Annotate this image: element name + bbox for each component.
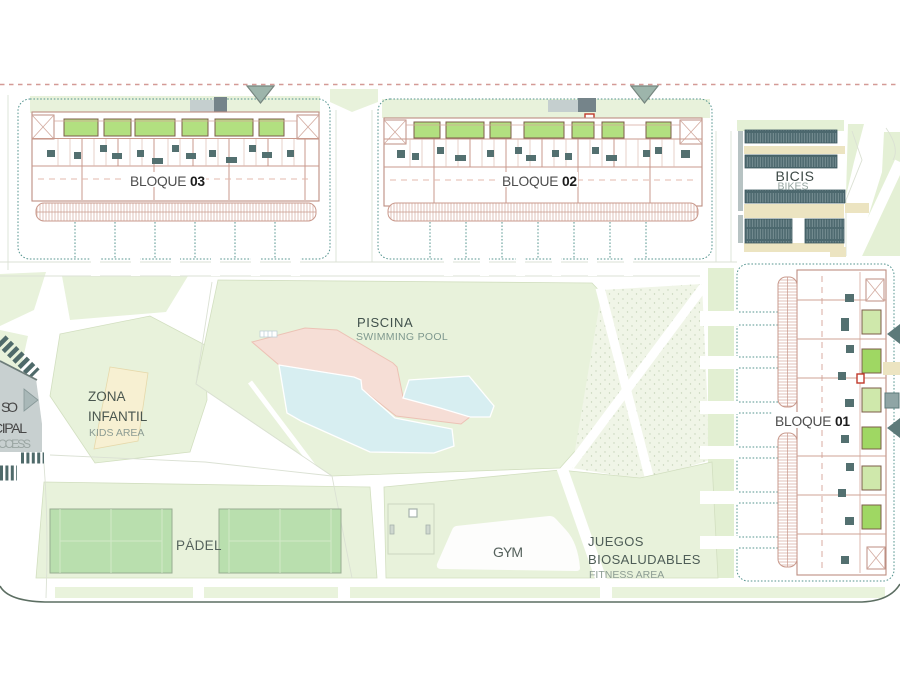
- svg-text:BLOQUE 03: BLOQUE 03: [130, 174, 205, 189]
- svg-text:BIOSALUDABLES: BIOSALUDABLES: [588, 552, 701, 567]
- svg-text:BLOQUE 01: BLOQUE 01: [775, 414, 850, 429]
- svg-text:KIDS AREA: KIDS AREA: [89, 427, 144, 439]
- svg-text:FITNESS AREA: FITNESS AREA: [589, 569, 664, 581]
- svg-text:INFANTIL: INFANTIL: [88, 409, 148, 424]
- svg-text:CIPAL: CIPAL: [0, 420, 27, 436]
- svg-text:SWIMMING POOL: SWIMMING POOL: [356, 331, 448, 343]
- svg-text:SO: SO: [1, 399, 18, 415]
- svg-text:GYM: GYM: [493, 544, 523, 560]
- svg-text:CCESS: CCESS: [0, 437, 31, 451]
- svg-text:JUEGOS: JUEGOS: [588, 534, 644, 549]
- svg-text:BLOQUE 02: BLOQUE 02: [502, 174, 577, 189]
- svg-text:ZONA: ZONA: [88, 389, 126, 404]
- svg-text:BIKES: BIKES: [778, 181, 809, 193]
- svg-text:PÁDEL: PÁDEL: [176, 538, 222, 553]
- svg-text:PISCINA: PISCINA: [357, 315, 413, 330]
